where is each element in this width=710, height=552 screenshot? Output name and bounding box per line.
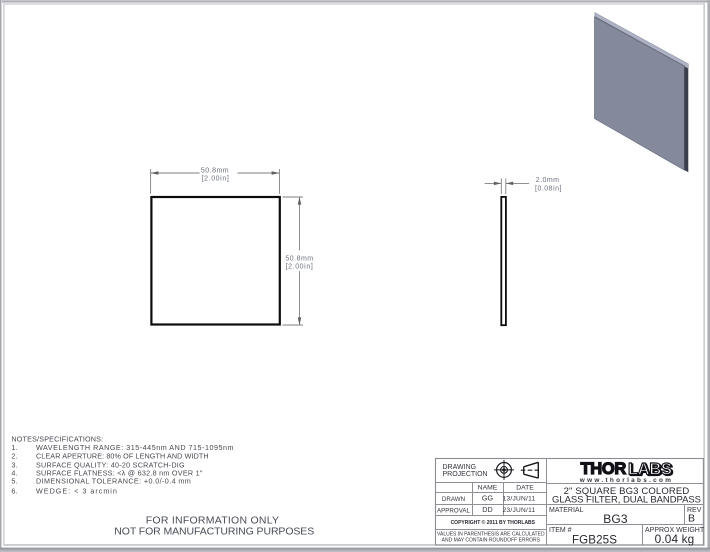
svg-text:[0.08in]: [0.08in] [535, 185, 562, 192]
svg-text:www.thorlabs.com: www.thorlabs.com [579, 477, 673, 484]
svg-text:CLEAR APERTURE: 80% OF LENGTH: CLEAR APERTURE: 80% OF LENGTH AND WIDTH [36, 452, 209, 461]
svg-text:2.0mm: 2.0mm [536, 177, 560, 184]
svg-text:MATERIAL: MATERIAL [549, 507, 584, 514]
svg-text:DD: DD [482, 505, 492, 514]
svg-text:5.: 5. [11, 477, 17, 486]
svg-text:DIMENSIONAL TOLERANCE: +0.0/-0: DIMENSIONAL TOLERANCE: +0.0/-0.4 mm [36, 477, 191, 486]
svg-text:B: B [688, 512, 695, 524]
svg-text:[2.00in]: [2.00in] [202, 176, 230, 183]
svg-text:COPYRIGHT © 2011 BY THORLABS: COPYRIGHT © 2011 BY THORLABS [451, 519, 536, 526]
svg-text:0.04 kg: 0.04 kg [655, 532, 695, 546]
svg-text:FGB25S: FGB25S [572, 534, 617, 547]
svg-text:NAME: NAME [478, 485, 498, 492]
svg-text:ITEM #: ITEM # [549, 527, 572, 534]
svg-text:NOT FOR MANUFACTURING PURPOSES: NOT FOR MANUFACTURING PURPOSES [114, 525, 314, 537]
svg-text:DRAWN: DRAWN [442, 496, 465, 503]
svg-text:2.: 2. [11, 452, 17, 461]
svg-text:DATE: DATE [516, 485, 534, 492]
svg-text:BG3: BG3 [603, 512, 628, 526]
svg-text:13/JUN/11: 13/JUN/11 [503, 496, 536, 503]
svg-text:THOR: THOR [581, 460, 627, 478]
svg-text:1.: 1. [11, 443, 17, 452]
svg-text:APPROVAL: APPROVAL [437, 508, 470, 515]
svg-text:[2.00in]: [2.00in] [286, 264, 314, 271]
svg-text:23/JUN/11: 23/JUN/11 [503, 507, 536, 514]
svg-text:AND MAY CONTAIN ROUNDOFF ERROR: AND MAY CONTAIN ROUNDOFF ERRORS [442, 537, 541, 543]
svg-text:GLASS FILTER, DUAL BANDPASS: GLASS FILTER, DUAL BANDPASS [552, 495, 701, 506]
svg-text:WEDGE: < 3 arcmin: WEDGE: < 3 arcmin [36, 486, 118, 495]
svg-text:50.8mm: 50.8mm [201, 168, 229, 175]
svg-text:6.: 6. [11, 486, 17, 495]
svg-text:LABS: LABS [628, 460, 672, 478]
svg-text:50.8mm: 50.8mm [285, 255, 313, 262]
svg-text:PROJECTION: PROJECTION [443, 471, 488, 478]
svg-text:GG: GG [482, 494, 494, 503]
svg-text:WAVELENGTH RANGE: 315-445nm AN: WAVELENGTH RANGE: 315-445nm AND 715-1095… [36, 443, 234, 452]
